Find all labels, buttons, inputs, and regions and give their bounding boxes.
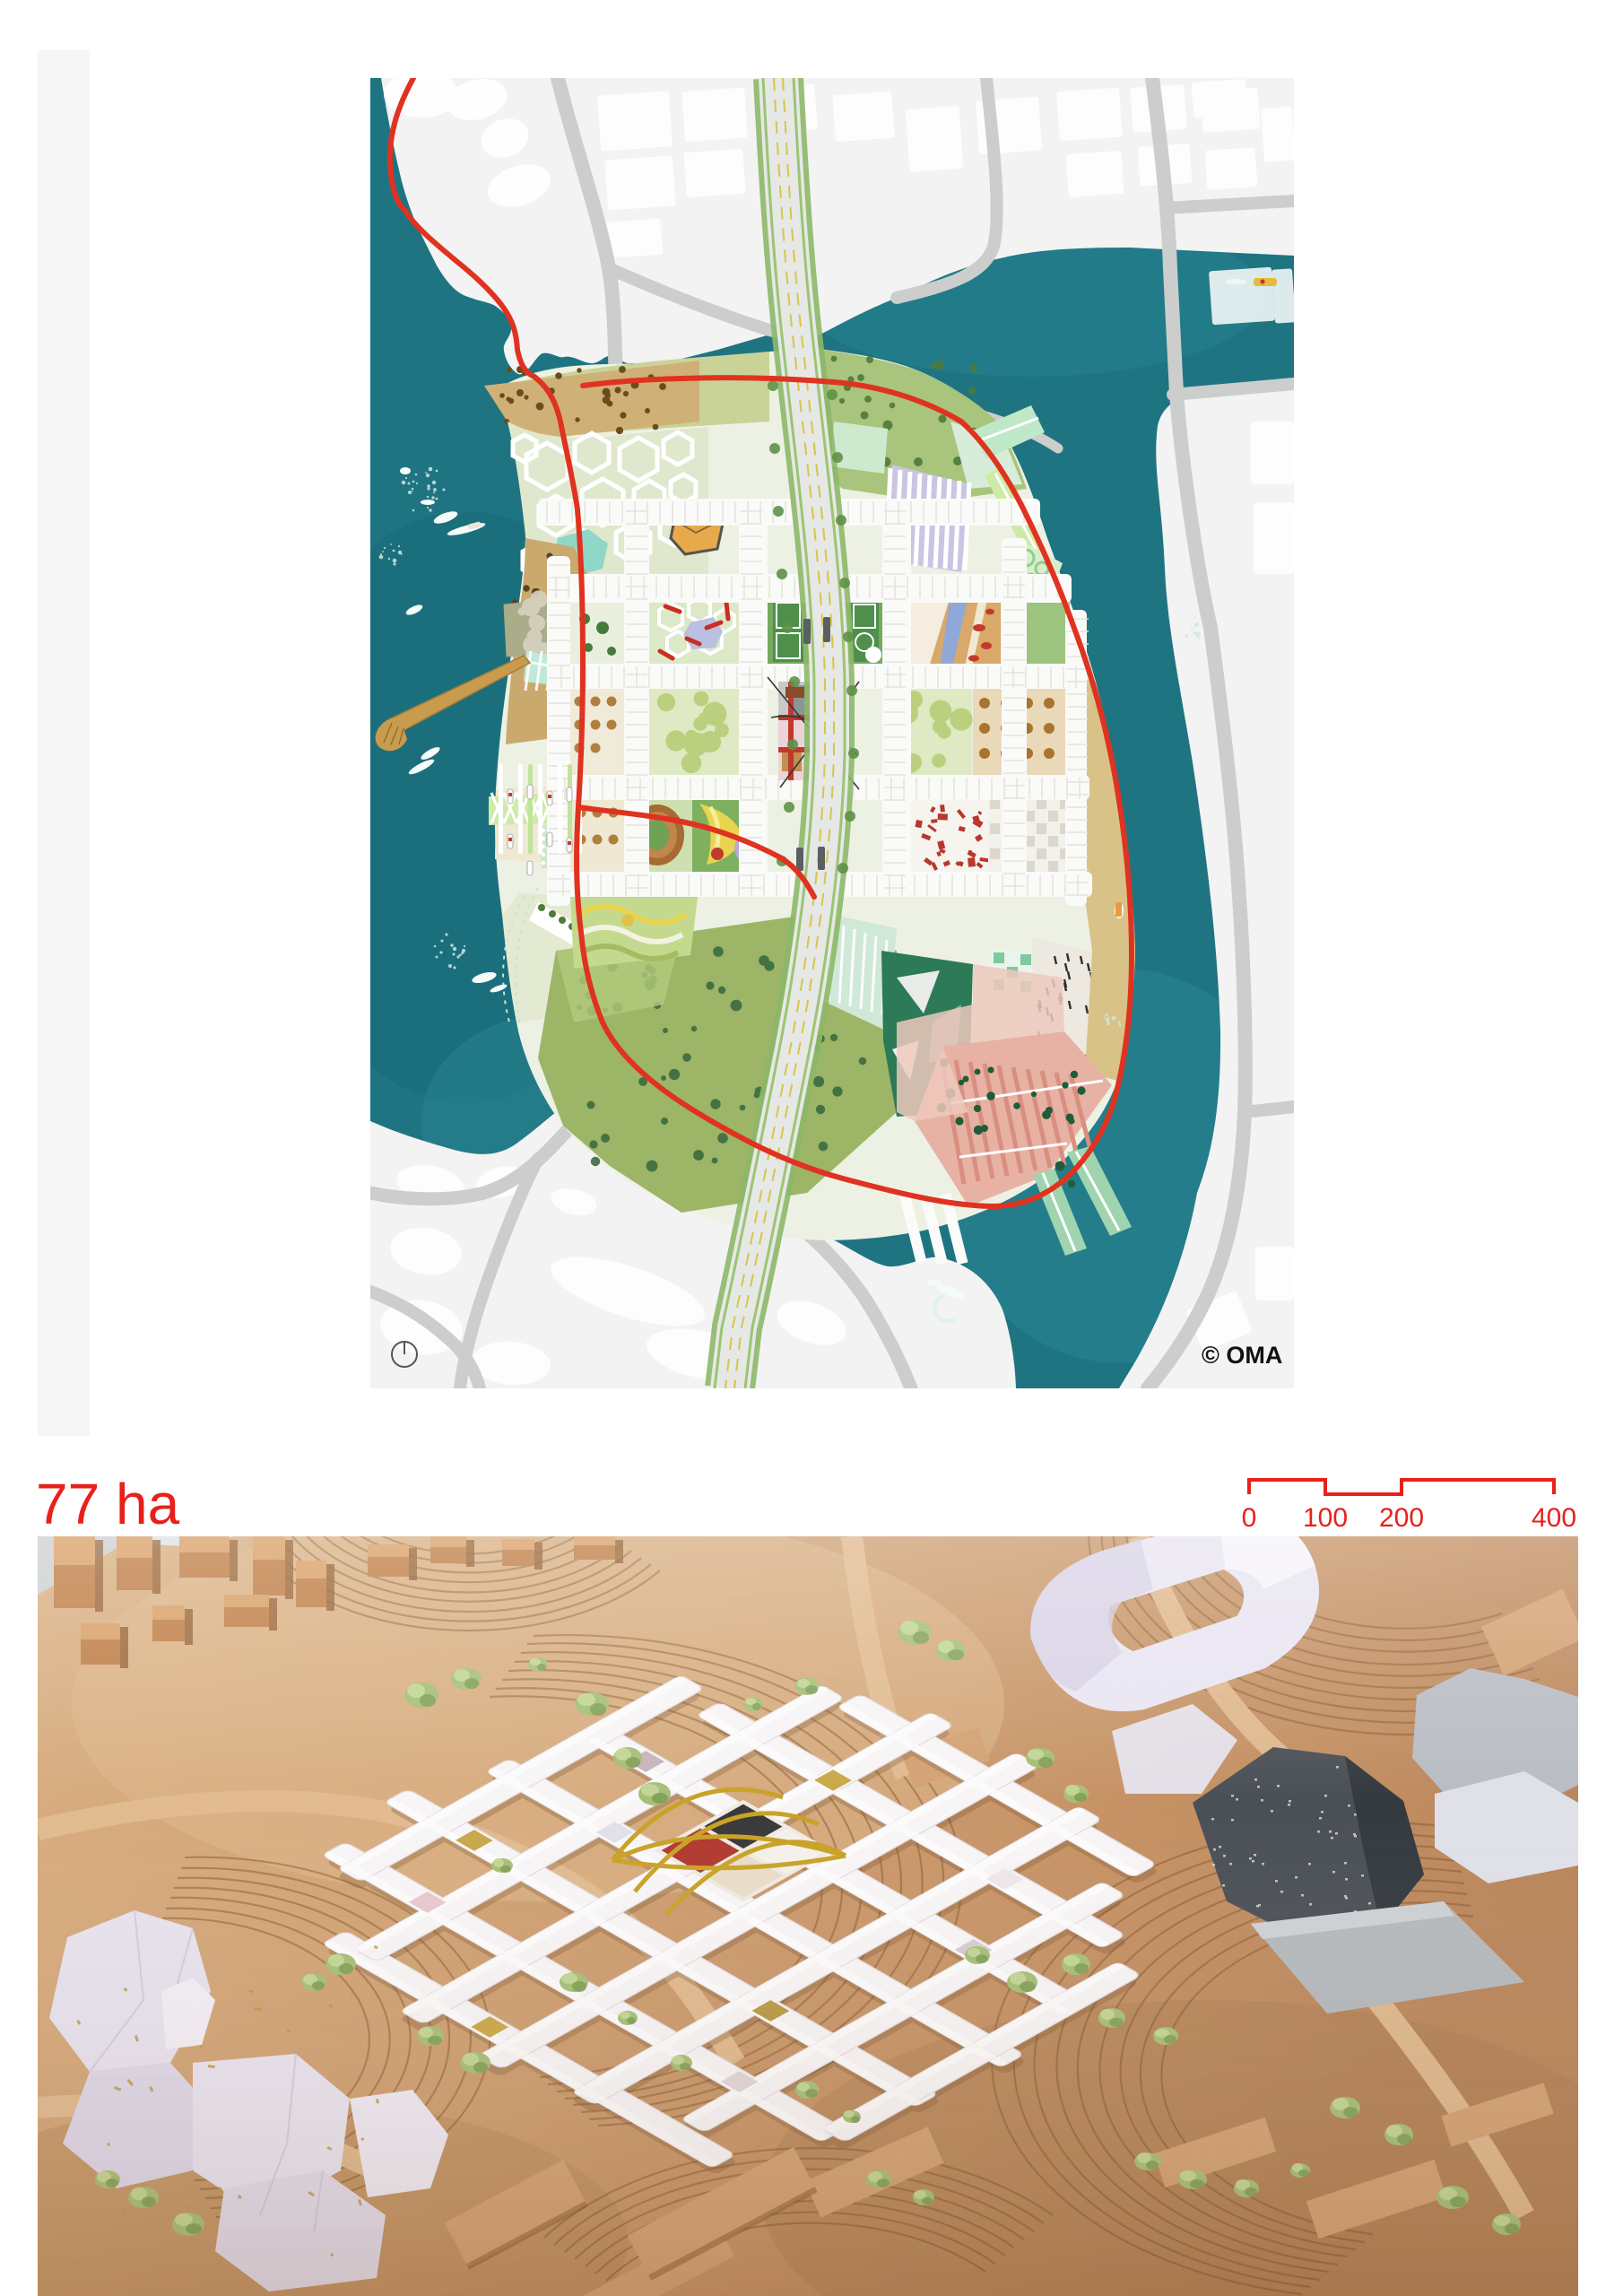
svg-text:100: 100 — [1303, 1503, 1348, 1533]
svg-text:0: 0 — [1242, 1503, 1257, 1533]
svg-text:© OMA: © OMA — [1202, 1342, 1282, 1369]
svg-text:200: 200 — [1379, 1503, 1424, 1533]
svg-text:400: 400 — [1532, 1503, 1576, 1533]
